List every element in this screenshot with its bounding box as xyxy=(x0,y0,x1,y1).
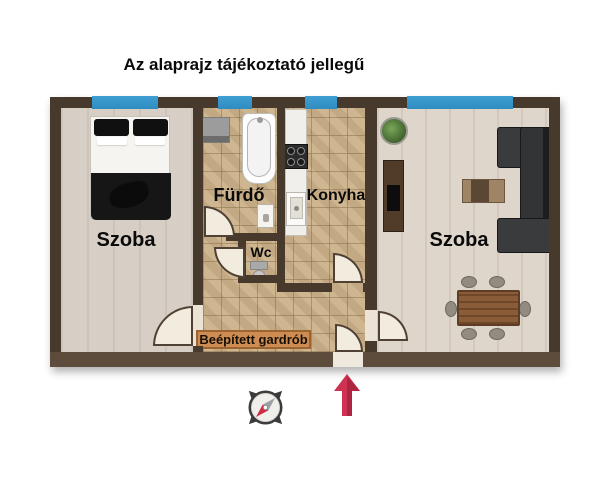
room-label-kitchen: Konyha xyxy=(298,187,374,205)
toilet-tank xyxy=(250,261,268,270)
entrance-threshold xyxy=(333,352,363,367)
dining-chair xyxy=(489,276,505,288)
window xyxy=(305,96,337,109)
blanket-fold xyxy=(107,179,151,211)
burner xyxy=(297,147,305,155)
burner xyxy=(287,147,295,155)
tv-cabinet xyxy=(383,160,404,232)
room-label-bathroom: Fürdő xyxy=(204,185,274,206)
dining-table xyxy=(457,290,520,326)
dining-chair xyxy=(445,301,457,317)
burner xyxy=(297,158,305,166)
bathtub-faucet xyxy=(257,117,263,123)
coffee-table-top xyxy=(471,180,489,202)
wall-segment xyxy=(363,283,377,292)
burner xyxy=(287,158,295,166)
tv-cabinet-door xyxy=(387,185,400,211)
room-label-living: Szoba xyxy=(399,229,519,252)
wall-segment xyxy=(50,97,61,367)
dining-chair xyxy=(461,276,477,288)
sink-faucet xyxy=(263,214,269,222)
bathroom-sink xyxy=(257,204,274,228)
window xyxy=(92,96,158,109)
kitchen-sink-drain xyxy=(294,206,299,211)
room-label-bedroom: Szoba xyxy=(66,229,186,252)
built-in-wardrobe: Beépített gardrób xyxy=(196,330,311,349)
wall-segment xyxy=(277,283,332,292)
pillow-small xyxy=(97,137,127,145)
window xyxy=(218,96,252,109)
coffee-table xyxy=(462,179,505,203)
pillow-small xyxy=(135,137,165,145)
wall-segment xyxy=(365,108,377,310)
wall-segment xyxy=(50,352,560,367)
wall-segment xyxy=(238,275,285,283)
dining-chair xyxy=(489,328,505,340)
wall-segment xyxy=(277,108,285,292)
wall-segment xyxy=(193,108,203,305)
dining-chair xyxy=(461,328,477,340)
wall-segment xyxy=(549,97,560,367)
page-title: Az alaprajz tájékoztató jellegű xyxy=(44,55,444,75)
plant xyxy=(380,117,408,145)
room-label-wc: Wc xyxy=(241,244,281,260)
pillow xyxy=(133,119,168,136)
stove xyxy=(284,144,308,169)
bathtub-basin xyxy=(247,118,271,177)
blanket xyxy=(91,173,171,220)
pillow xyxy=(94,119,129,136)
bathtub xyxy=(242,113,276,184)
floor-plan-page: Az alaprajz tájékoztató jellegű xyxy=(0,0,600,480)
compass-icon xyxy=(242,384,289,431)
wall-segment xyxy=(193,346,203,352)
floor-plan: Beépített gardrób xyxy=(50,97,560,367)
wardrobe-label: Beépített gardrób xyxy=(199,332,307,347)
window xyxy=(407,96,513,109)
washing-machine-panel xyxy=(199,136,229,142)
bed xyxy=(90,116,170,219)
wall-segment xyxy=(365,341,377,352)
north-arrow-icon xyxy=(334,374,360,416)
dining-chair xyxy=(519,301,531,317)
